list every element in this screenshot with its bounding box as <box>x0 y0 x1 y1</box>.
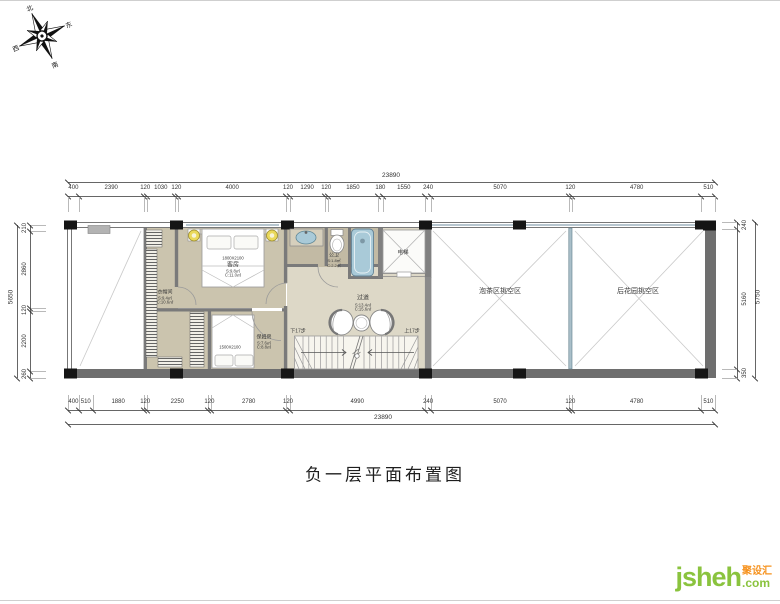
dim-total-label: 23890 <box>382 172 400 179</box>
room-area-c: C:10.6㎡ <box>157 301 174 306</box>
dim-segment-label: 510 <box>703 185 713 191</box>
dim-extension <box>701 395 702 410</box>
dim-segment-label: 4000 <box>226 185 239 191</box>
dim-extension <box>290 197 291 212</box>
dim-segment-label: 1550 <box>397 185 410 191</box>
dim-segment-label: 2250 <box>171 399 184 405</box>
dim-segment-label: 5160 <box>742 292 748 305</box>
dim-line <box>30 225 31 378</box>
dim-line <box>68 410 715 411</box>
room-area-c: C:11.0㎡ <box>225 274 241 279</box>
dim-segment-label: 400 <box>68 399 78 405</box>
compass-south-label: 南 <box>50 59 60 70</box>
dim-extension <box>715 197 716 212</box>
dim-segment-label: 400 <box>68 185 78 191</box>
dim-extension <box>31 231 46 232</box>
dim-extension <box>572 197 573 212</box>
dim-segment-label: 1880 <box>111 399 124 405</box>
dim-segment-label: 4990 <box>351 399 364 405</box>
dim-line <box>68 424 715 425</box>
dim-segment-label: 1850 <box>346 185 359 191</box>
dim-extension <box>79 197 80 212</box>
dim-extension <box>569 197 570 212</box>
dim-segment-label: 240 <box>423 399 433 405</box>
room-label-elevator: 电梯 <box>397 250 408 256</box>
stairs-up-label: 上17步 <box>404 329 420 335</box>
dim-extension <box>383 197 384 212</box>
dim-extension <box>178 197 179 212</box>
dim-extension <box>722 229 737 230</box>
dim-segment-label: 260 <box>22 369 28 379</box>
dim-segment-label: 5070 <box>493 399 506 405</box>
dim-extension <box>286 197 287 212</box>
dim-extension <box>431 197 432 212</box>
dim-segment-label: 4780 <box>630 185 643 191</box>
dim-segment-label: 2390 <box>105 185 118 191</box>
dim-segment-label: 120 <box>22 305 28 315</box>
dim-extension <box>722 378 737 379</box>
room-area-c: C:15.6㎡ <box>355 308 372 313</box>
dim-line <box>68 196 715 197</box>
dim-segment-label: 120 <box>140 185 150 191</box>
dim-total-label: 23890 <box>374 414 392 421</box>
bed-size-label: 1500X2100 <box>219 346 240 351</box>
dim-total-label: 5750 <box>755 290 762 304</box>
dim-segment-label: 2780 <box>242 399 255 405</box>
dim-line <box>68 182 715 183</box>
watermark-logo: jsheh 聚设汇 .com <box>675 566 772 589</box>
room-label-tea-void: 泡茶区挑空区 <box>479 288 521 296</box>
dim-segment-label: 120 <box>204 399 214 405</box>
dim-segment-label: 350 <box>742 368 748 378</box>
dim-segment-label: 5070 <box>493 185 506 191</box>
dim-extension <box>325 197 326 212</box>
floorplan-canvas: 北 东 南 西 衣帽间 S:9.4㎡ C:10.6㎡ 1800X2100 客房 … <box>0 0 780 604</box>
dim-extension <box>144 197 145 212</box>
dim-segment-label: 180 <box>375 185 385 191</box>
dim-extension <box>31 311 46 312</box>
dim-line <box>17 225 18 378</box>
compass-north-label: 北 <box>25 3 35 13</box>
dim-extension <box>79 395 80 410</box>
dim-segment-label: 120 <box>283 185 293 191</box>
dim-extension <box>715 395 716 410</box>
dim-segment-label: 4780 <box>630 399 643 405</box>
drawing-title: 负一层平面布置图 <box>305 461 465 486</box>
dim-segment-label: 120 <box>565 399 575 405</box>
dim-extension <box>722 369 737 370</box>
dim-segment-label: 510 <box>703 399 713 405</box>
dim-extension <box>31 225 46 226</box>
compass-east-label: 东 <box>64 19 74 30</box>
dim-segment-label: 210 <box>22 223 28 233</box>
toilet-icon <box>330 235 344 253</box>
floorplan-drawing: 北 东 南 西 <box>0 0 780 604</box>
compass-icon: 北 东 南 西 <box>0 0 87 82</box>
dim-segment-label: 510 <box>81 399 91 405</box>
dim-segment-label: 1030 <box>154 185 167 191</box>
nanny-bed <box>212 315 254 368</box>
dim-segment-label: 120 <box>171 185 181 191</box>
dim-segment-label: 2860 <box>22 263 28 276</box>
dim-segment-label: 2200 <box>22 334 28 347</box>
bed-size-label: 1800X2100 <box>222 257 243 262</box>
dim-segment-label: 240 <box>423 185 433 191</box>
dim-extension <box>68 197 69 212</box>
dim-segment-label: 120 <box>283 399 293 405</box>
dim-segment-label: 120 <box>565 185 575 191</box>
equipment-box <box>88 226 110 234</box>
dim-extension <box>722 222 737 223</box>
dim-extension <box>378 197 379 212</box>
dim-segment-label: 240 <box>742 220 748 230</box>
watermark-name: jsheh <box>675 566 741 589</box>
dim-extension <box>701 197 702 212</box>
room-area-c: C:2.2㎡ <box>327 263 341 267</box>
dim-extension <box>31 371 46 372</box>
dim-total-label: 5650 <box>8 290 15 304</box>
room-area-c: C:8.8㎡ <box>257 346 271 351</box>
dim-extension <box>147 197 148 212</box>
dim-extension <box>328 197 329 212</box>
stairs-down-label: 下17步 <box>290 329 306 335</box>
dim-segment-label: 120 <box>140 399 150 405</box>
dim-extension <box>425 197 426 212</box>
dim-segment-label: 120 <box>321 185 331 191</box>
dim-line <box>737 222 738 378</box>
dim-extension <box>31 308 46 309</box>
dim-extension <box>31 378 46 379</box>
compass-star <box>9 3 75 69</box>
dim-segment-label: 1290 <box>300 185 313 191</box>
dim-extension <box>175 197 176 212</box>
dim-extension <box>93 395 94 410</box>
room-label-garden-void: 后花园挑空区 <box>617 288 659 296</box>
watermark-tld: .com <box>742 577 770 589</box>
compass-west-label: 西 <box>11 44 21 54</box>
